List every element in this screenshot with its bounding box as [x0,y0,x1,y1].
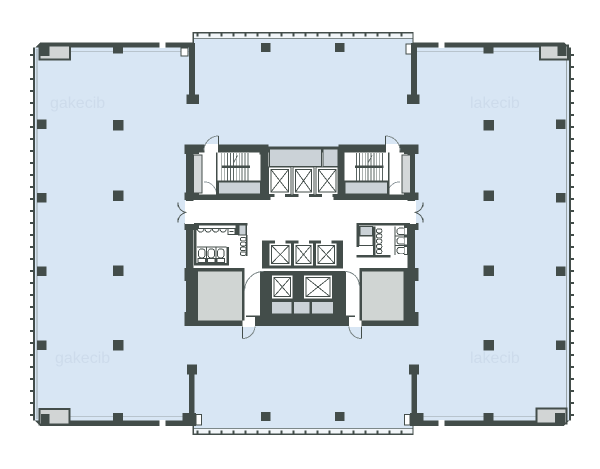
svg-text:gakecib: gakecib [55,350,110,367]
svg-text:lakecib: lakecib [470,350,520,367]
svg-text:lakecib: lakecib [470,95,520,112]
svg-text:gakecib: gakecib [50,95,105,112]
